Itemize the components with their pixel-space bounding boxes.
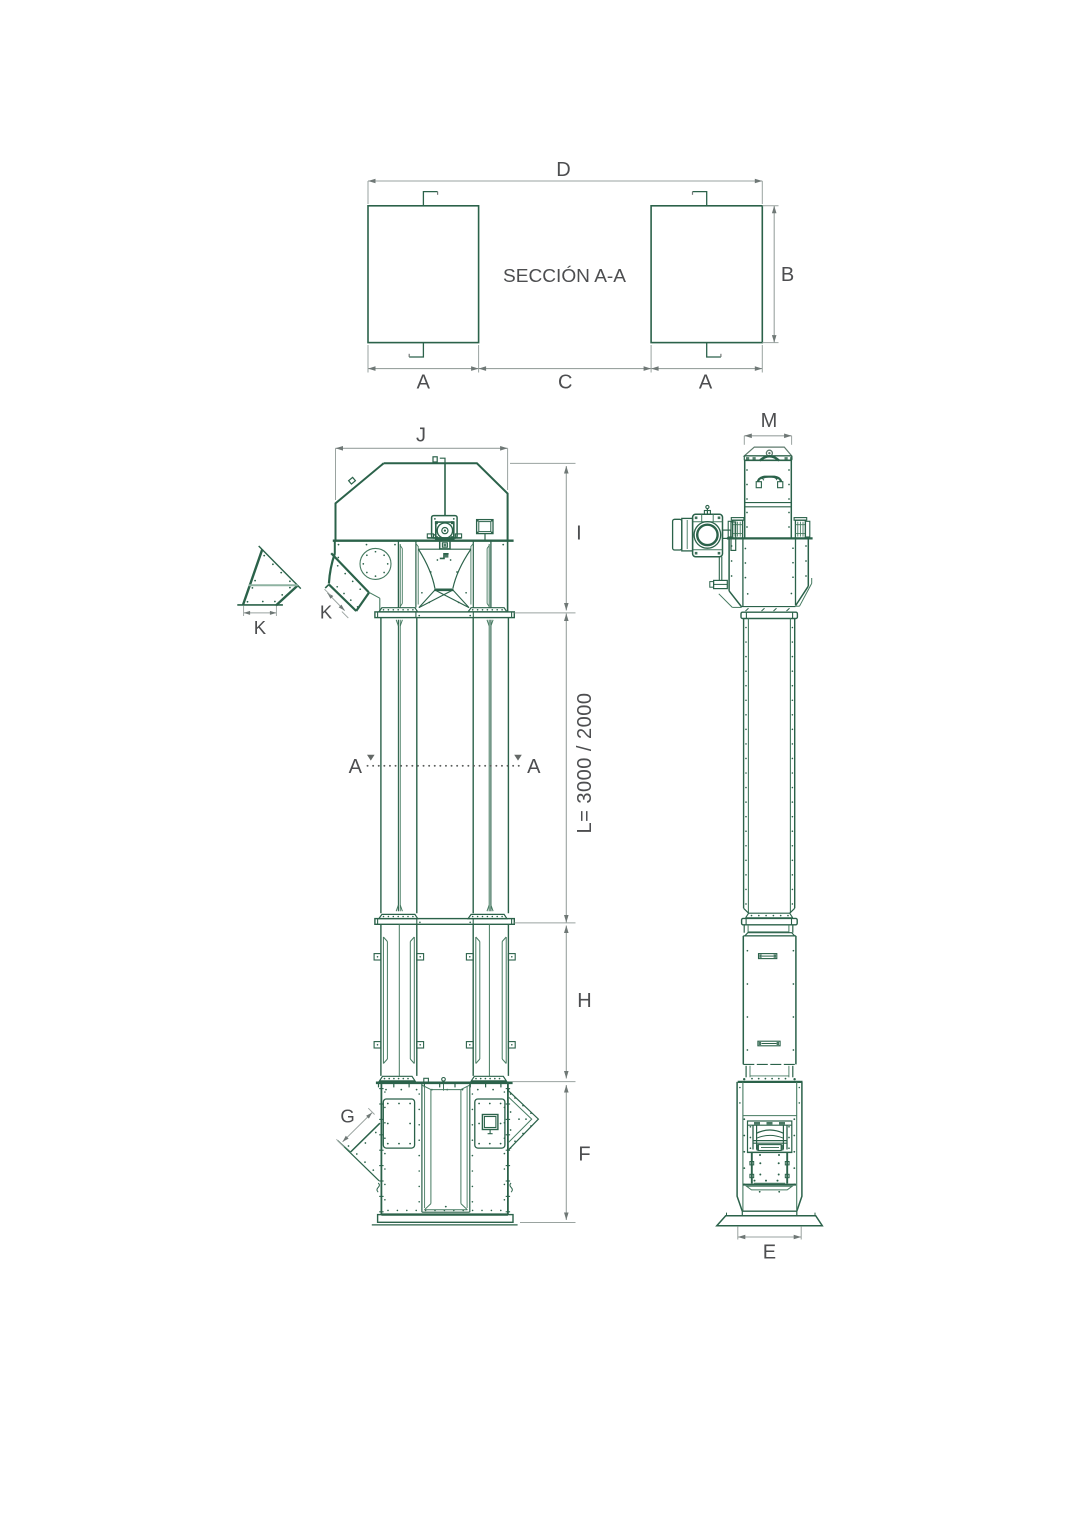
svg-text:K: K: [320, 601, 333, 622]
svg-text:F: F: [578, 1143, 590, 1165]
svg-text:A: A: [527, 756, 541, 778]
svg-text:K: K: [254, 617, 267, 638]
svg-text:A: A: [699, 371, 713, 393]
svg-text:SECCIÓN A-A: SECCIÓN A-A: [503, 265, 627, 286]
svg-text:M: M: [761, 410, 778, 432]
svg-text:J: J: [416, 425, 426, 447]
svg-text:D: D: [556, 159, 570, 181]
svg-text:A: A: [417, 371, 431, 393]
svg-text:A: A: [349, 756, 363, 778]
svg-text:C: C: [558, 371, 572, 393]
svg-text:I: I: [576, 523, 582, 545]
svg-text:G: G: [340, 1106, 354, 1127]
svg-text:H: H: [577, 990, 591, 1012]
svg-text:B: B: [781, 264, 794, 286]
svg-text:E: E: [763, 1242, 776, 1264]
svg-text:L= 3000 / 2000: L= 3000 / 2000: [574, 692, 596, 833]
